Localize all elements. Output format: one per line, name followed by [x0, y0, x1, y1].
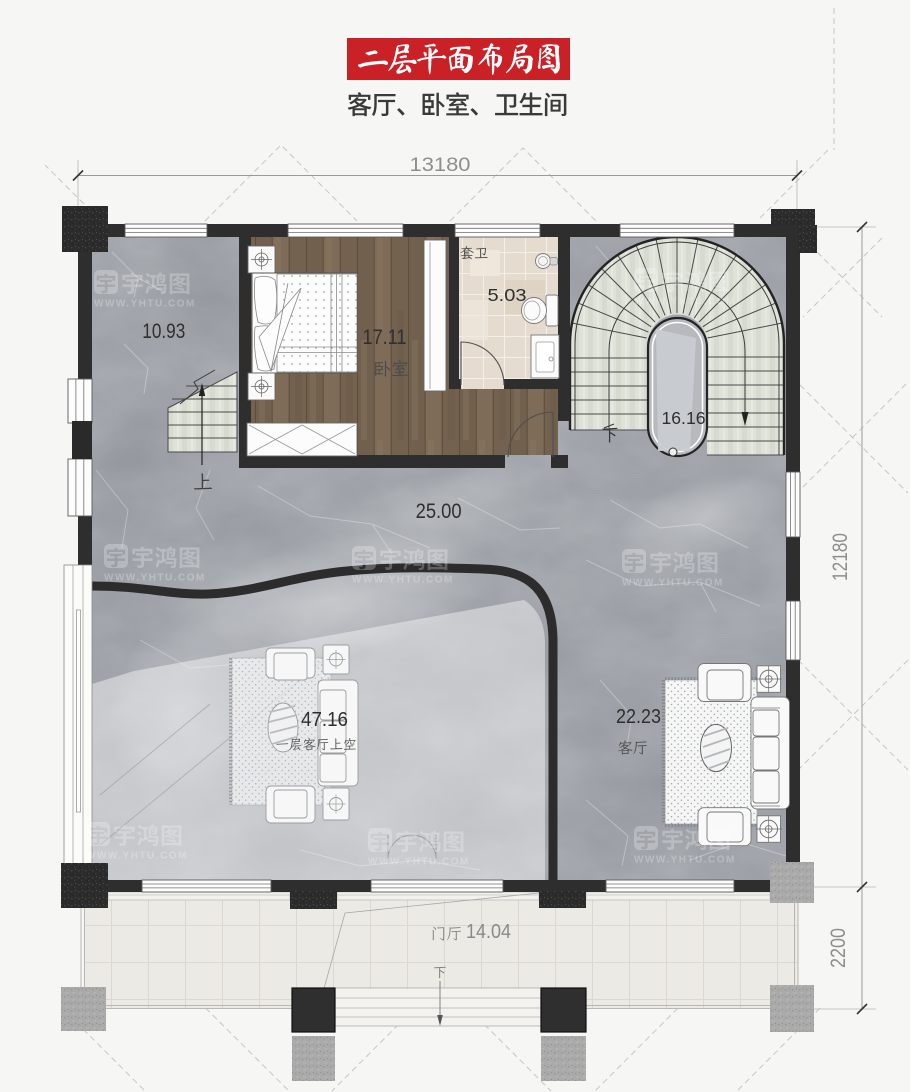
svg-text:13180: 13180: [410, 154, 471, 176]
svg-text:17.11: 17.11: [363, 326, 407, 349]
svg-text:16.16: 16.16: [662, 408, 706, 428]
svg-text:12180: 12180: [829, 533, 852, 581]
svg-text:22.23: 22.23: [616, 705, 661, 728]
svg-text:2200: 2200: [827, 928, 850, 968]
svg-text:25.00: 25.00: [416, 500, 462, 523]
svg-text:5.03: 5.03: [488, 285, 527, 305]
svg-text:14.04: 14.04: [466, 921, 511, 943]
svg-text:47.16: 47.16: [301, 709, 348, 731]
svg-text:10.93: 10.93: [142, 320, 185, 343]
